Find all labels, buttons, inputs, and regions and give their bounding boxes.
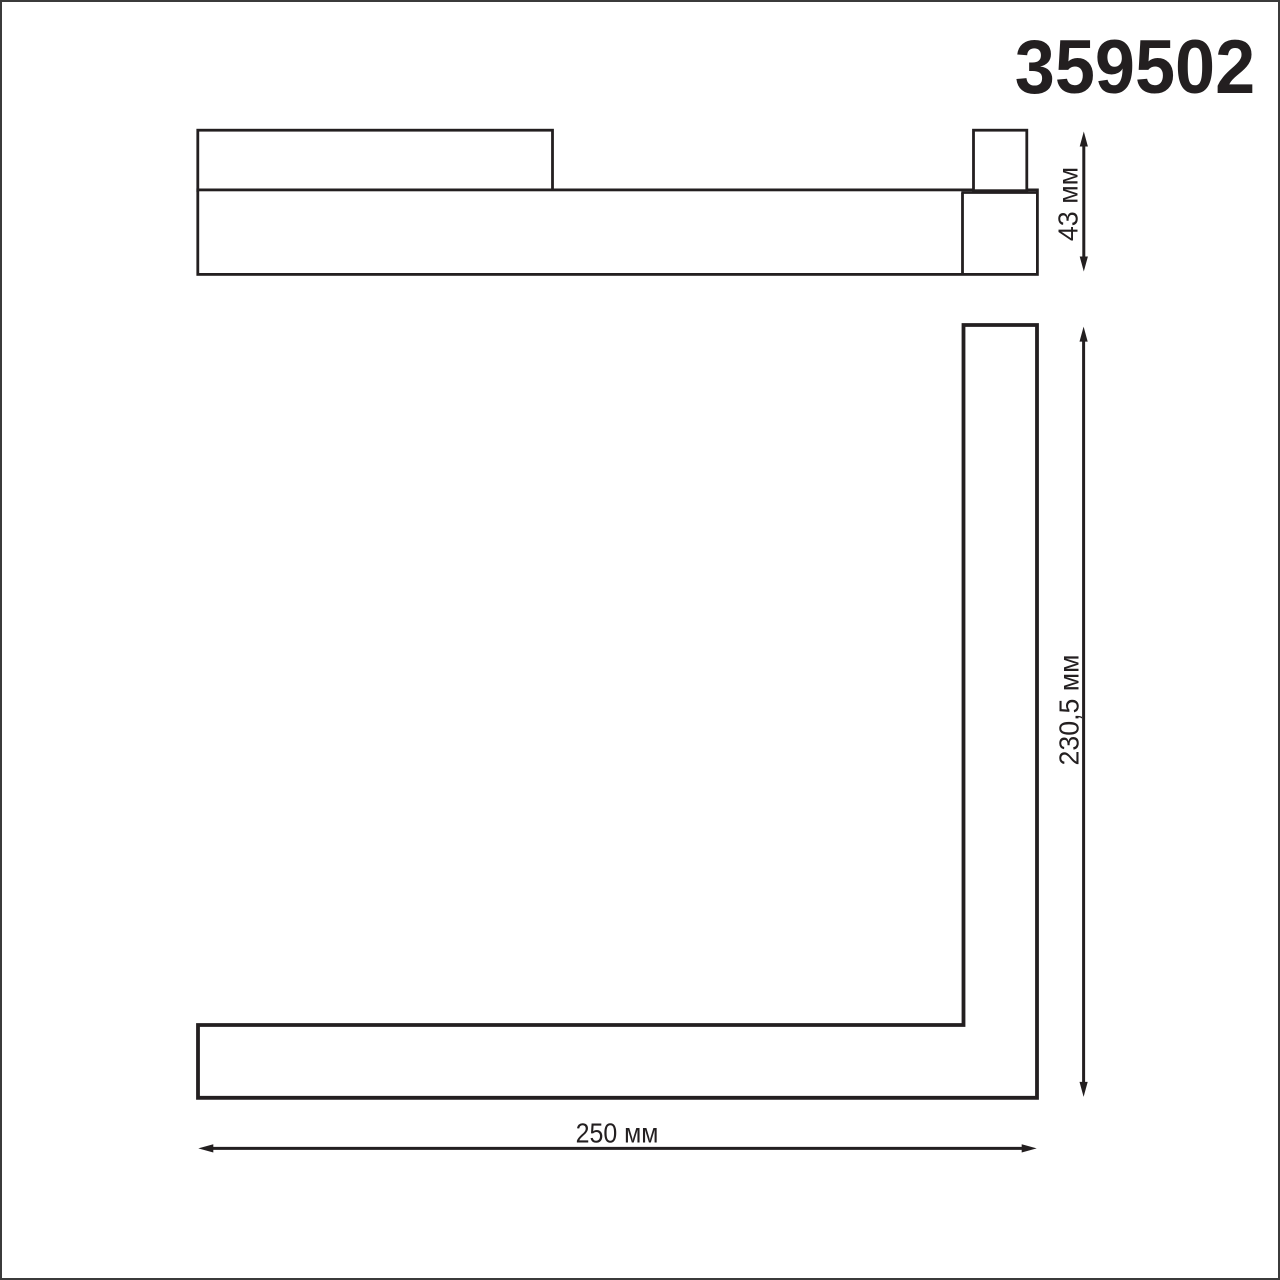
svg-text:250 мм: 250 мм <box>576 1117 659 1149</box>
svg-text:43 мм: 43 мм <box>1052 167 1084 241</box>
svg-text:230,5 мм: 230,5 мм <box>1053 654 1085 765</box>
svg-text:359502: 359502 <box>1015 24 1255 109</box>
